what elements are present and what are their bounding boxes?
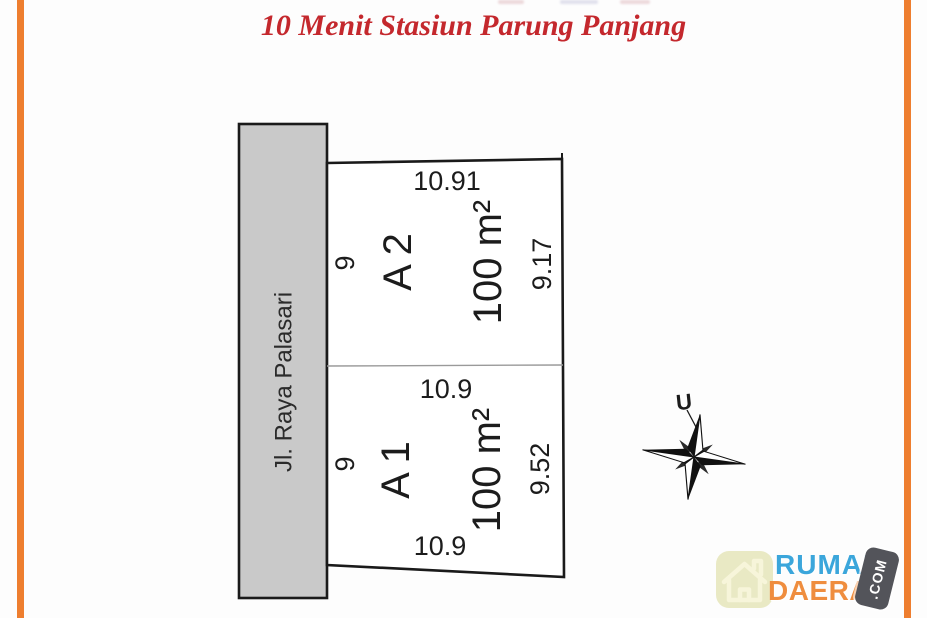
plot-a1-area: 100 m² bbox=[465, 408, 509, 533]
plot-a2-dim-right: 9.17 bbox=[527, 238, 557, 291]
plot-a2-area: 100 m² bbox=[466, 200, 510, 325]
plot-a1-dim-bottom: 10.9 bbox=[414, 531, 467, 561]
site-plan: Jl. Raya Palasari 10.91 A 2 100 m² 9 9.1… bbox=[0, 0, 927, 618]
plot-a1-dim-right: 9.52 bbox=[525, 443, 555, 496]
plot-a1-dim-left: 9 bbox=[330, 456, 360, 471]
rumahdaerah-logo: RUMAH DAERAH .COM bbox=[712, 545, 917, 613]
house-icon bbox=[716, 551, 773, 608]
plot-a1-dim-top: 10.9 bbox=[420, 374, 473, 404]
compass-north-label: U bbox=[675, 389, 693, 416]
plot-a2-dim-left: 9 bbox=[330, 255, 360, 270]
compass-rose-icon: U bbox=[637, 389, 752, 507]
plot-a1-id: A 1 bbox=[374, 441, 418, 499]
road-label: Jl. Raya Palasari bbox=[271, 292, 298, 472]
plot-a2-dim-top: 10.91 bbox=[413, 166, 481, 196]
com-badge-label: .COM bbox=[864, 557, 889, 600]
page: 10 Menit Stasiun Parung Panjang Jl. Raya… bbox=[0, 0, 927, 618]
plot-boundary bbox=[327, 159, 564, 577]
plot-a2-id: A 2 bbox=[376, 233, 420, 291]
